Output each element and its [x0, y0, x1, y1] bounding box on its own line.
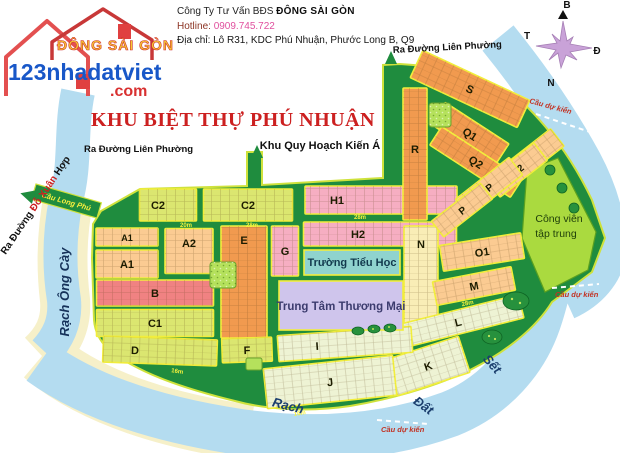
block-label-c2: C2 [151, 200, 165, 212]
logo-tld-text[interactable]: .com [110, 83, 147, 100]
cau-du-kien-label-3: Cầu dự kiến [381, 425, 425, 434]
block-a2: A2 [165, 229, 213, 274]
company-brand: ĐÔNG SÀI GÒN [276, 6, 355, 17]
label-lien-phuong-left: Ra Đường Liên Phường [84, 144, 193, 155]
block-a1: A1 [96, 228, 158, 246]
market-block: Trung Tâm Thương Mại [277, 281, 406, 330]
block-a1: A1 [96, 250, 158, 278]
block-label-a1: A1 [120, 259, 134, 271]
block-label-j: J [326, 377, 333, 390]
block-d: D [103, 336, 218, 366]
school-label: Trường Tiểu Học [308, 257, 397, 269]
address-value: Lô R31, KDC Phú Nhuận, Phước Long B, Q9 [213, 35, 414, 46]
hotline-label: Hotline: [177, 21, 214, 32]
label-kien-a: Khu Quy Hoạch Kiến Á [260, 139, 380, 152]
hotline-number[interactable]: 0909.745.722 [214, 21, 275, 32]
block-label-b: B [151, 288, 159, 300]
block-label-o1: O1 [474, 246, 490, 260]
real-estate-map-page: Công viên tập trung Cầu Long Phú C2C2H1H… [0, 0, 620, 453]
school-block: Trường Tiểu Học [304, 250, 400, 275]
logo-site-text[interactable]: 123nhadatviet [8, 59, 162, 85]
block-c2: C2 [140, 189, 197, 221]
block-label-a2: A2 [182, 238, 196, 250]
block-label-f: F [243, 345, 250, 357]
road-width-label: 28m [354, 215, 366, 221]
block-label-g: G [281, 246, 290, 258]
block-label-a1: A1 [121, 233, 133, 243]
central-park-label-line2: tập trung [535, 228, 577, 240]
compass-north-arrow-icon [558, 10, 568, 19]
block-h1: H1 [305, 186, 457, 214]
map-title: KHU BIỆT THỰ PHÚ NHUẬN [91, 107, 375, 131]
market-label-main: Trung Tâm Thương Mại [277, 301, 406, 313]
block-c2: C2 [204, 189, 293, 221]
company-prefix: Công Ty Tư Vấn BĐS [177, 6, 276, 17]
block-label-h1: H1 [330, 195, 344, 207]
block-c1: C1 [97, 310, 214, 337]
compass-label-north: B [563, 0, 570, 11]
central-park-label-line1: Công viên [535, 213, 582, 225]
address-line: Địa chỉ: Lô R31, KDC Phú Nhuận, Phước Lo… [177, 34, 477, 49]
block-label-n: N [417, 239, 425, 251]
block-label-h2: H2 [351, 229, 365, 241]
compass-label-south: N [547, 78, 554, 89]
block-b: B [97, 280, 214, 306]
company-name-line: Công Ty Tư Vấn BĐS ĐÔNG SÀI GÒN [177, 5, 477, 20]
road-width-label: 20m [180, 223, 192, 229]
block-label-e: E [240, 235, 247, 247]
block-g: G [272, 226, 299, 276]
site-logo[interactable]: ĐÔNG SÀI GÒN 123nhadatviet .com [6, 9, 174, 100]
block-r: R [403, 88, 427, 220]
block-label-c1: C1 [148, 318, 162, 330]
address-label: Địa chỉ: [177, 35, 213, 46]
block-label-c2: C2 [241, 200, 255, 212]
block-label-d: D [131, 345, 139, 357]
logo-brand-text: ĐÔNG SÀI GÒN [57, 36, 174, 53]
company-info: Công Ty Tư Vấn BĐS ĐÔNG SÀI GÒN Hotline:… [177, 5, 477, 49]
road-width-label: 28m [246, 223, 258, 229]
compass-star-icon [536, 21, 592, 68]
compass-label-west: T [524, 31, 530, 42]
cau-du-kien-label-2: Cầu dự kiến [555, 290, 599, 299]
compass-label-east: Đ [593, 46, 600, 57]
label-rach-ong-cay: Rạch Ông Cày [57, 247, 72, 337]
hotline-line: Hotline: 0909.745.722 [177, 20, 477, 35]
block-label-r: R [411, 144, 419, 156]
